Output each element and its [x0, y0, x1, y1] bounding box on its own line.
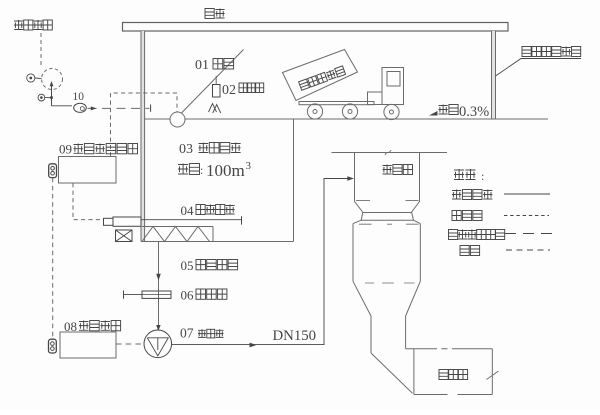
- svg-text:03: 03: [179, 142, 193, 157]
- svg-text:08: 08: [64, 319, 77, 334]
- svg-text:05: 05: [181, 258, 194, 273]
- svg-text:06: 06: [181, 288, 195, 303]
- svg-text:07: 07: [180, 326, 194, 341]
- svg-text:10: 10: [73, 91, 85, 103]
- svg-text:04: 04: [181, 203, 195, 218]
- svg-text::: :: [200, 163, 203, 177]
- svg-text:09: 09: [59, 142, 72, 157]
- svg-text:0.3%: 0.3%: [459, 104, 489, 120]
- svg-text:01: 01: [195, 58, 209, 73]
- svg-text:02: 02: [222, 83, 236, 98]
- svg-text::: :: [481, 169, 484, 183]
- svg-text:3: 3: [246, 160, 252, 172]
- svg-text:100m: 100m: [206, 161, 245, 180]
- svg-text:DN150: DN150: [273, 328, 317, 344]
